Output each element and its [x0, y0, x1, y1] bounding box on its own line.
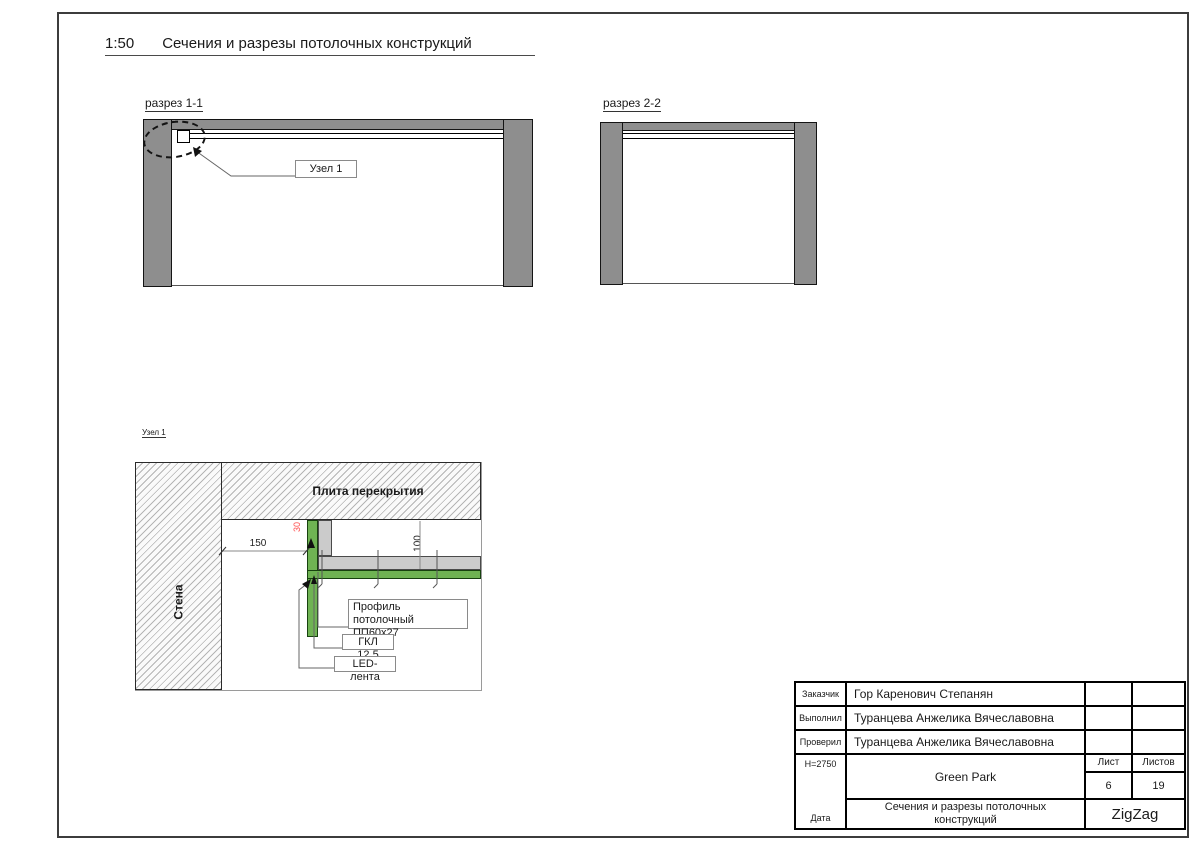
dim-30-arrow-icon: [307, 538, 315, 548]
tb-customer-value: Гор Каренович Степанян: [847, 683, 1084, 705]
tb-checker-label: Проверил: [796, 731, 845, 753]
tb-author-label: Выполнил: [796, 707, 845, 729]
tb-checker-value: Туранцева Анжелика Вячеславовна: [847, 731, 1084, 753]
tb-customer-label: Заказчик: [796, 683, 845, 705]
screw-tick-2-tail: [374, 584, 378, 588]
screw-tick-3-tail: [433, 584, 437, 588]
gkl-leader-arrow-icon: [311, 575, 317, 584]
tb-sheet-label: Лист: [1086, 753, 1131, 771]
node-leader-arrow-icon: [193, 147, 202, 157]
tb-sheets-label: Листов: [1133, 753, 1184, 771]
led-leader-arrow-icon: [302, 579, 311, 589]
title-block: Заказчик Гор Каренович Степанян Выполнил…: [794, 681, 1186, 830]
tb-sheets-total: 19: [1133, 773, 1184, 798]
tb-logo: ZigZag: [1086, 800, 1184, 828]
tb-date-label: Дата: [796, 811, 845, 825]
tb-project-name: Green Park: [847, 755, 1084, 798]
tb-doc-title: Сечения и разрезы потолочных конструкций: [847, 800, 1084, 828]
screw-tick-1-tail: [318, 584, 322, 588]
led-leader-line: [299, 583, 334, 668]
tb-height-note: Н=2750: [796, 757, 845, 771]
node-leader-line: [196, 151, 295, 176]
tb-author-value: Туранцева Анжелика Вячеславовна: [847, 707, 1084, 729]
tb-sheet-number: 6: [1086, 773, 1131, 798]
